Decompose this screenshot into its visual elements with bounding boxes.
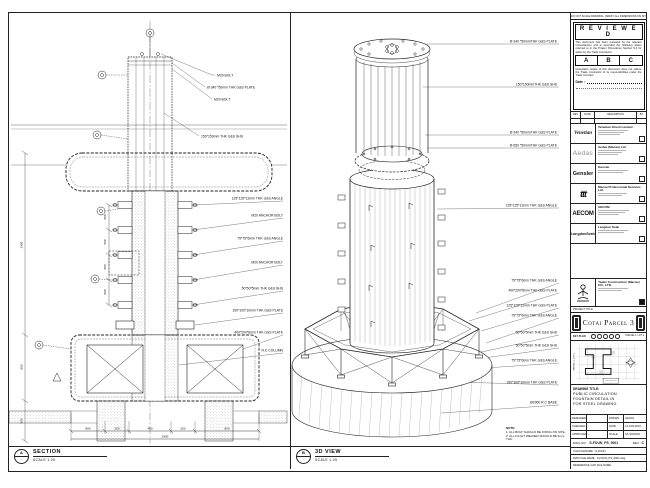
callout-label: M20 BOLT [214, 98, 230, 102]
section-label-strip: A - SECTION SCALE 1:25 [9, 446, 290, 469]
address-lines [598, 195, 622, 196]
callout-label: 150*150mmTHK G&S SHS [516, 83, 558, 87]
scale-value: AS SHOWN [624, 431, 645, 438]
dim-label: 200 [180, 427, 185, 431]
signature-fields: DESIGNED DRAWN LEUNG CHECKED - DATE 14-J… [571, 415, 646, 439]
dwg-no-label: DWG NO : [573, 441, 587, 445]
callout-label: 125*125*12mm THK G&S PLATE [506, 304, 557, 308]
address-lines [598, 288, 628, 289]
consultant-row-venetian: Venetian Venetian Orient Limited [571, 124, 646, 144]
ornament-left [572, 315, 581, 331]
callout-label: Ø2900 R.C BASE [530, 401, 558, 405]
dim-total-label: 2900 [162, 435, 169, 439]
section-marker-letter: A [15, 450, 28, 457]
dim-label: 800 [224, 427, 229, 431]
reference-file-row: REFERENCE CAD FILE NAME : [571, 462, 646, 469]
drawing-number-row: DWG NO : S-FOUN_PS_0001 REV : C [571, 439, 646, 448]
compass-marker [626, 358, 636, 368]
checked-label: CHECKED [571, 423, 587, 430]
address-lines [598, 134, 620, 135]
venetian-logo: Venetian [571, 124, 596, 143]
address-lines [598, 150, 626, 151]
consultant-row-gensler: Gensler Gensler [571, 164, 646, 184]
reviewed-header: R E V I E W E D [575, 24, 643, 40]
address-lines [598, 132, 624, 133]
callout-label: Ø 650 *50mmTHK G&S PLATE [510, 144, 558, 148]
key-plan-parcel-right: PARCEL 1, LOT 2 [626, 335, 644, 337]
dim-label: 500 [103, 214, 107, 219]
aedas-logo: Aedas [571, 144, 596, 163]
key-plan-map: PARCEL 1, LOT 1 [571, 341, 645, 384]
dim-label: 200 [114, 427, 119, 431]
contractor-name: Yadex Construction (Macau) CO., LTD. [598, 281, 644, 288]
callout-label: 75*75*6mm THK G&S ANGLE [237, 237, 283, 241]
dwg-filename-row: DWG FILE NAME : S-FOUN_PS_0001.dwg [571, 455, 646, 462]
dim-label: 800 [85, 427, 90, 431]
section-view-drawing: M20 BOLT Ø 340 *50mm THK G&S PLATE M20 B… [9, 13, 290, 446]
dim-label: 500 [20, 418, 24, 423]
callout-label: M20 BOLT [217, 74, 233, 78]
dim-label: 450 [147, 427, 152, 431]
approved-label: APPROVED [571, 431, 587, 438]
key-plan-markers [586, 334, 626, 339]
consultant-name: AECOM [598, 206, 644, 209]
reviewed-stamp: R E V I E W E D This document has been r… [571, 20, 646, 112]
callout-label: Ø 340 *50mmTHK G&S PLATE [510, 131, 558, 135]
consultant-checkbox [639, 196, 645, 202]
status-option-a: A [576, 56, 598, 65]
callout-label: Ø 340 *50mmTHK G&S PLATE [510, 40, 558, 44]
yadex-logo [571, 279, 596, 306]
ttt-logo: ttt [571, 184, 596, 203]
callout-label: 150*100*10mm THK G&S PLATE [506, 381, 557, 385]
title-block: DO NOT SCALE DRAWING. VERIFY ALL DIMENSI… [570, 13, 646, 469]
date-label: DATE [608, 423, 624, 430]
section-view-scale: SCALE 1:25 [33, 458, 107, 462]
callout-label: 150*100*10mm THK G&S PLATE [232, 309, 283, 313]
revision-table: REV DATE DESCRIPTION BY [571, 112, 646, 124]
project-name: Cotai Parcel 3 [582, 318, 635, 327]
consultant-name: Venetian Orient Limited [598, 126, 644, 129]
aecom-logo: AECOM [571, 204, 596, 223]
approved-value: - [587, 431, 608, 438]
section-marker-bubble: A - [14, 449, 29, 464]
designed-value [587, 415, 608, 422]
dim-label: 800 [20, 364, 24, 369]
callout-label: 75*75*6mm THK G&S ANGLE [511, 314, 557, 318]
consultant-row-aecom: AECOM AECOM [571, 204, 646, 224]
address-lines [598, 193, 627, 194]
titleblock-top-note: DO NOT SCALE DRAWING. VERIFY ALL DIMENSI… [571, 13, 646, 20]
callout-label: R.C COLUMN [262, 349, 284, 353]
ornament-right [636, 315, 645, 331]
gensler-logo: Gensler [571, 164, 596, 183]
rev-empty-row [571, 119, 646, 123]
fountain-column [338, 169, 445, 353]
callout-label: 125*125*12mm THK G&S ANGLE [506, 204, 558, 208]
empty-box [571, 244, 646, 279]
consultant-checkbox [639, 236, 645, 242]
contractor-checkbox [639, 299, 645, 305]
rev-value: C [642, 441, 644, 445]
address-lines [598, 210, 629, 211]
callout-label: 150*150mm THK G&S SHS [201, 135, 244, 139]
dim-label: 2400 [20, 241, 24, 248]
drawn-value: LEUNG [624, 415, 645, 422]
drawing-title-line: FOR STEEL DRAWING [573, 402, 644, 407]
address-lines [598, 212, 625, 213]
section-marker-ref: - [15, 457, 28, 463]
general-notes: NOTE: 1. ALL BOLT SHOULD BE FIXING ON SI… [506, 427, 570, 442]
address-lines [598, 232, 624, 233]
consultant-row-aedas: Aedas Aedas (Macau) Ltd. [571, 144, 646, 164]
rev-col-header: REV [571, 112, 581, 118]
iso-annotations: Ø 340 *50mmTHK G&S PLATE 150*150mmTHK G&… [506, 40, 558, 405]
iso-marker-letter: B [297, 450, 310, 457]
drawing-sheet-page: M20 BOLT Ø 340 *50mm THK G&S PLATE M20 B… [0, 0, 650, 488]
address-lines [598, 214, 619, 215]
drawing-title-box: DRAWING TITLE: PUBLIC CIRCULATION FOUNTA… [571, 385, 646, 415]
callout-label: 400*200*8mm THK G&S PLATE [508, 289, 557, 293]
address-lines [598, 172, 623, 173]
callout-label: 50*50*5mm THK G&S SHS [516, 344, 558, 348]
designed-label: DESIGNED [571, 415, 587, 422]
address-lines [598, 290, 622, 291]
consultant-name: Macau Professional Services Ltd. [598, 186, 644, 193]
rev-col-header: DESCRIPTION [595, 112, 637, 118]
iso-marker-ref: - [297, 457, 310, 463]
reviewed-status-options: A B C [575, 55, 643, 66]
consultant-checkbox [639, 176, 645, 182]
iso-geometry [292, 39, 559, 437]
reviewed-paragraph-1: This document has been reviewed by the r… [576, 41, 642, 54]
consultant-checkbox [639, 216, 645, 222]
contractor-row: Yadex Construction (Macau) CO., LTD. [571, 279, 646, 307]
address-lines [598, 152, 622, 153]
detail-bubbles [35, 71, 128, 349]
address-lines [598, 170, 628, 171]
checked-value: - [587, 423, 608, 430]
project-title-band: Cotai Parcel 3 [571, 313, 646, 333]
building-footprint [585, 349, 610, 374]
dim-label: 500 [103, 289, 107, 294]
dwg-no-value: S-FOUN_PS_0001 [589, 441, 633, 445]
callout-label: M20 ANCHOR BOLT [251, 214, 283, 218]
reviewed-date-line [587, 80, 642, 84]
callout-label: 75*75*6mm THK G&S ANGLE [511, 359, 557, 363]
iso-view-drawing: Ø 340 *50mmTHK G&S PLATE 150*150mmTHK G&… [291, 13, 570, 446]
status-option-c: C [620, 56, 641, 65]
status-option-b: B [598, 56, 620, 65]
consultant-name: Langdon Seah [598, 226, 644, 229]
langdon-seah-logo: LangdonSeah [571, 224, 596, 243]
section-geometry [9, 21, 287, 443]
rev-label: REV : [633, 441, 641, 445]
callout-label: 75*75*6mm THK G&S ANGLE [511, 279, 557, 283]
top-plate [354, 39, 430, 63]
pipe-cluster [356, 51, 428, 156]
callout-label: 125*125*12mm THK G&S ANGLE [232, 197, 284, 201]
note-item: 2. ALL FILLET WELDED SHOULD BE 6mm THK. [506, 435, 570, 443]
drawing-title-label: DRAWING TITLE: [573, 387, 644, 391]
consultant-checkbox [639, 156, 645, 162]
rev-col-header: DATE [581, 112, 595, 118]
dotted-line [576, 84, 642, 89]
cad-filename-row: CAD FILENAME : S-FOUN [571, 448, 646, 455]
consultant-row-macau-professional: ttt Macau Professional Services Ltd. [571, 184, 646, 204]
section-view-title: SECTION [33, 449, 107, 457]
date-value: 14-JAN-2015 [624, 423, 645, 430]
callout-label: 50*50*5mm THK G&S SHS [516, 331, 558, 335]
consultant-name: Aedas (Macau) Ltd. [598, 146, 644, 149]
dim-label: 500 [103, 264, 107, 269]
scale-label: SCALE [608, 431, 624, 438]
dim-label: 500 [103, 239, 107, 244]
rev-col-header: BY [637, 112, 646, 118]
consultant-checkbox [639, 136, 645, 142]
callout-label: M20 ANCHOR BOLT [251, 261, 283, 265]
drawn-label: DRAWN [608, 415, 624, 422]
iso-view-title: 3D VIEW [315, 449, 389, 457]
address-lines [598, 130, 628, 131]
callout-label: 400*200*8mm THK G&S PLATE [234, 331, 283, 335]
callout-label: 50*50*5mm THK G&S SHS [242, 287, 284, 291]
key-plan-label: KEY PLAN [573, 335, 586, 338]
iso-label-strip: B - 3D VIEW SCALE 1:25 [291, 446, 570, 469]
consultant-name: Gensler [598, 166, 644, 169]
iso-marker-bubble: B - [296, 449, 311, 464]
reviewed-paragraph-2: Consultant review of this document does … [576, 68, 642, 78]
address-lines [598, 154, 618, 155]
reviewed-date-label: Date : [576, 80, 585, 84]
key-plan-box: KEY PLAN PARCEL 1, LOT 2 PARCEL 1, L [571, 333, 646, 385]
key-plan-parcel-left: PARCEL 1, LOT 1 [573, 352, 576, 370]
iso-view-scale: SCALE 1:25 [315, 458, 389, 462]
address-lines [598, 230, 628, 231]
callout-label: Ø 340 *50mm THK G&S PLATE [207, 86, 256, 90]
consultant-row-langdon-seah: LangdonSeah Langdon Seah [571, 224, 646, 244]
